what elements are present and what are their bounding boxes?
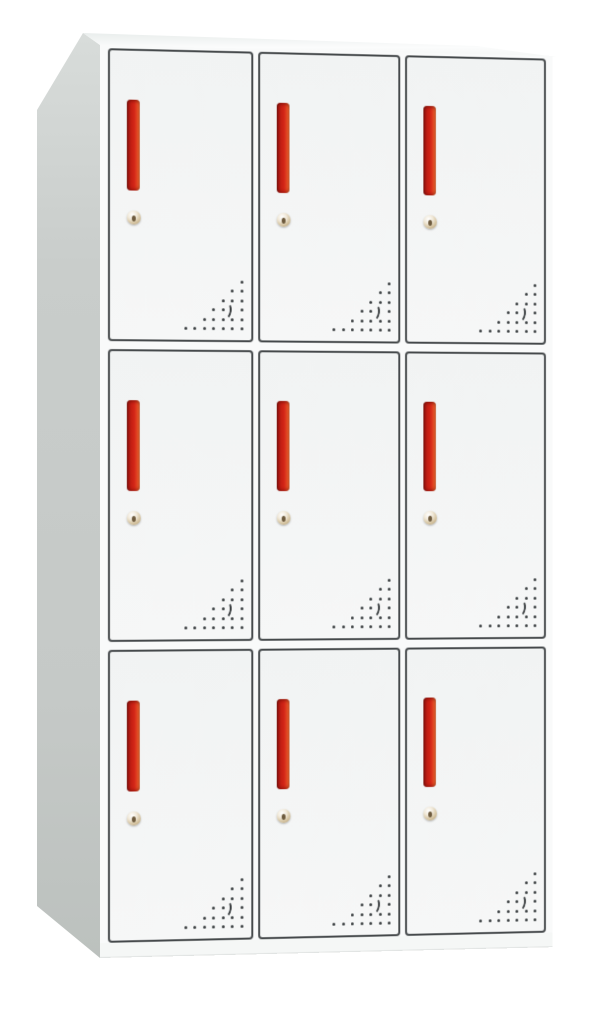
vent-hole <box>212 327 215 330</box>
vent-hole <box>240 290 243 293</box>
vent-hole <box>379 329 382 332</box>
vent-hole <box>212 318 215 321</box>
vent-grid <box>479 578 536 627</box>
vent-hole <box>388 625 391 628</box>
vent-hole <box>240 906 243 909</box>
vent-hole <box>497 330 500 333</box>
vent-hole <box>515 624 518 627</box>
vent-hole <box>360 616 363 619</box>
vent-hole <box>193 626 196 629</box>
vent-hole <box>370 597 373 600</box>
vent-grid <box>479 872 536 922</box>
vent-hole <box>379 319 382 322</box>
vent-hole <box>506 919 509 922</box>
vent-hole <box>240 897 243 900</box>
vent-grid <box>333 579 391 629</box>
vent-hole <box>184 626 187 629</box>
vent-hole <box>212 626 215 629</box>
vent-hole <box>525 330 528 333</box>
vent-hole <box>379 894 382 897</box>
vent-hole <box>497 910 500 913</box>
vent-hole <box>360 922 363 925</box>
vent-hole <box>360 625 363 628</box>
keyhole-icon <box>132 816 136 822</box>
vent-hole <box>370 894 373 897</box>
door-handle <box>424 697 437 787</box>
vent-hole <box>515 330 518 333</box>
vent-hole <box>534 624 537 627</box>
keyhole-icon <box>429 220 433 226</box>
vent-hole <box>506 615 509 618</box>
vent-hole <box>240 598 243 601</box>
vent-hole <box>222 925 225 928</box>
vent-grid <box>184 280 243 330</box>
vent-hole <box>388 875 391 878</box>
vent-hole <box>388 292 391 295</box>
locker-row <box>108 647 546 943</box>
vent-hole <box>240 607 243 610</box>
cam-lock <box>276 511 290 525</box>
vent-hole <box>379 597 382 600</box>
vent-hole <box>240 281 243 284</box>
vent-hole <box>534 615 537 618</box>
vent-hole <box>515 919 518 922</box>
door-handle <box>276 401 289 491</box>
vent-hole <box>534 909 537 912</box>
vent-grid <box>184 579 243 629</box>
vent-hole <box>497 624 500 627</box>
vent-hole <box>222 299 225 302</box>
vent-hole <box>388 607 391 610</box>
vent-hole <box>525 909 528 912</box>
vent-hole <box>379 616 382 619</box>
door-handle <box>424 402 437 491</box>
vent-hole <box>388 912 391 915</box>
vent-hole <box>212 925 215 928</box>
vent-hole <box>388 579 391 582</box>
keyhole-icon <box>429 811 433 817</box>
vent-hole <box>370 625 373 628</box>
vent-hole <box>240 887 243 890</box>
door-handle <box>127 100 140 191</box>
vent-hole <box>515 597 518 600</box>
vent-hole <box>351 625 354 628</box>
vent-hole <box>351 319 354 322</box>
vent-hole <box>231 318 234 321</box>
vent-hole <box>534 900 537 903</box>
locker-row <box>108 48 546 345</box>
vent-hole <box>184 327 187 330</box>
vent-hole <box>388 903 391 906</box>
cam-lock <box>276 213 290 227</box>
cam-lock <box>127 811 141 825</box>
vent-hole <box>506 321 509 324</box>
door-handle <box>276 103 289 193</box>
vent-hole <box>525 597 528 600</box>
vent-hole <box>515 891 518 894</box>
vent-hole <box>388 310 391 313</box>
vent-hole <box>370 301 373 304</box>
vent-hole <box>351 616 354 619</box>
vent-hole <box>231 598 234 601</box>
cam-lock <box>424 511 437 525</box>
locker-door <box>108 349 253 642</box>
vent-hole <box>534 312 537 315</box>
vent-hole <box>360 328 363 331</box>
vent-hole <box>525 918 528 921</box>
cam-lock <box>424 807 437 821</box>
vent-hole <box>525 615 528 618</box>
vent-hole <box>342 625 345 628</box>
cam-lock <box>127 511 141 525</box>
vent-hole <box>379 292 382 295</box>
vent-hole <box>240 589 243 592</box>
vent-hole <box>231 916 234 919</box>
vent-hole <box>360 607 363 610</box>
vent-hole <box>497 615 500 618</box>
vent-hole <box>525 293 528 296</box>
vent-hole <box>193 926 196 929</box>
vent-hole <box>203 626 206 629</box>
vent-hole <box>240 318 243 321</box>
vent-hole <box>525 321 528 324</box>
vent-hole <box>479 919 482 922</box>
vent-hole <box>222 327 225 330</box>
vent-hole <box>488 919 491 922</box>
vent-hole <box>222 626 225 629</box>
vent-hole <box>240 626 243 629</box>
keyhole-icon <box>429 516 433 522</box>
vent-hole <box>488 624 491 627</box>
vent-grid <box>333 875 391 926</box>
vent-hole <box>534 872 537 875</box>
vent-hole <box>231 299 234 302</box>
vent-hole <box>388 301 391 304</box>
vent-hole <box>184 926 187 929</box>
vent-hole <box>488 330 491 333</box>
vent-hole <box>222 598 225 601</box>
cabinet-side-panel <box>37 33 100 958</box>
vent-hole <box>388 319 391 322</box>
vent-hole <box>534 597 537 600</box>
vent-hole <box>506 606 509 609</box>
door-handle <box>276 699 289 789</box>
vent-hole <box>240 915 243 918</box>
cabinet-front <box>100 45 553 958</box>
vent-hole <box>525 882 528 885</box>
vent-hole <box>379 922 382 925</box>
vent-crescent-hole <box>514 894 527 912</box>
vent-hole <box>360 310 363 313</box>
locker-door <box>108 48 253 342</box>
vent-hole <box>360 913 363 916</box>
vent-hole <box>212 617 215 620</box>
locker-door <box>258 648 401 940</box>
vent-hole <box>525 587 528 590</box>
vent-hole <box>506 311 509 314</box>
vent-hole <box>388 282 391 285</box>
vent-hole <box>342 923 345 926</box>
vent-hole <box>240 327 243 330</box>
vent-hole <box>388 329 391 332</box>
vent-hole <box>497 919 500 922</box>
vent-hole <box>379 912 382 915</box>
vent-hole <box>231 897 234 900</box>
vent-hole <box>479 329 482 332</box>
vent-hole <box>534 587 537 590</box>
locker-door <box>108 649 253 943</box>
locker-door <box>405 647 546 936</box>
vent-hole <box>333 328 336 331</box>
vent-hole <box>534 293 537 296</box>
vent-hole <box>231 888 234 891</box>
vent-hole <box>203 617 206 620</box>
vent-hole <box>379 588 382 591</box>
vent-hole <box>525 624 528 627</box>
keyhole-icon <box>132 516 136 522</box>
vent-hole <box>534 284 537 287</box>
vent-hole <box>240 878 243 881</box>
vent-grid <box>184 878 243 929</box>
door-handle <box>127 400 140 491</box>
vent-hole <box>333 923 336 926</box>
vent-hole <box>240 617 243 620</box>
vent-grid <box>479 283 536 333</box>
vent-hole <box>240 309 243 312</box>
vent-hole <box>388 597 391 600</box>
keyhole-icon <box>132 215 136 221</box>
locker-product-photo <box>0 0 605 1009</box>
vent-hole <box>231 589 234 592</box>
vent-hole <box>222 897 225 900</box>
vent-hole <box>203 926 206 929</box>
vent-hole <box>351 913 354 916</box>
vent-hole <box>370 328 373 331</box>
vent-hole <box>506 900 509 903</box>
locker-door <box>405 55 546 344</box>
vent-hole <box>212 916 215 919</box>
vent-hole <box>240 579 243 582</box>
vent-hole <box>231 617 234 620</box>
vent-hole <box>193 327 196 330</box>
vent-hole <box>534 918 537 921</box>
keyhole-icon <box>281 814 285 820</box>
vent-hole <box>351 328 354 331</box>
cam-lock <box>424 215 437 229</box>
vent-hole <box>212 907 215 910</box>
vent-hole <box>534 302 537 305</box>
vent-hole <box>388 894 391 897</box>
vent-hole <box>534 330 537 333</box>
vent-hole <box>534 891 537 894</box>
vent-hole <box>360 904 363 907</box>
vent-hole <box>231 626 234 629</box>
vent-hole <box>388 884 391 887</box>
vent-hole <box>506 910 509 913</box>
vent-hole <box>203 318 206 321</box>
cam-lock <box>127 210 141 224</box>
vent-hole <box>351 922 354 925</box>
vent-hole <box>342 328 345 331</box>
vent-hole <box>379 885 382 888</box>
locker-door <box>405 351 546 639</box>
vent-hole <box>203 916 206 919</box>
vent-hole <box>534 578 537 581</box>
door-grid <box>108 48 546 943</box>
vent-hole <box>506 330 509 333</box>
vent-hole <box>388 921 391 924</box>
cam-lock <box>276 809 290 823</box>
vent-hole <box>379 301 382 304</box>
locker-door <box>258 52 401 344</box>
vent-hole <box>534 881 537 884</box>
vent-hole <box>370 922 373 925</box>
vent-hole <box>231 290 234 293</box>
keyhole-icon <box>281 218 285 224</box>
door-handle <box>424 106 437 196</box>
vent-hole <box>333 625 336 628</box>
keyhole-icon <box>281 516 285 522</box>
vent-grid <box>333 282 391 332</box>
vent-hole <box>212 608 215 611</box>
vent-hole <box>379 625 382 628</box>
vent-hole <box>203 327 206 330</box>
vent-hole <box>212 308 215 311</box>
vent-hole <box>534 321 537 324</box>
vent-hole <box>231 925 234 928</box>
vent-hole <box>231 327 234 330</box>
vent-crescent-hole <box>514 599 527 617</box>
vent-hole <box>240 299 243 302</box>
vent-hole <box>497 320 500 323</box>
vent-hole <box>525 302 528 305</box>
door-handle <box>127 701 140 792</box>
vent-hole <box>525 891 528 894</box>
vent-hole <box>240 925 243 928</box>
vent-hole <box>388 588 391 591</box>
vent-hole <box>515 302 518 305</box>
vent-hole <box>479 624 482 627</box>
locker-door <box>258 350 401 641</box>
vent-hole <box>506 624 509 627</box>
vent-hole <box>534 606 537 609</box>
vent-hole <box>388 616 391 619</box>
locker-row <box>108 349 546 642</box>
vent-hole <box>360 319 363 322</box>
